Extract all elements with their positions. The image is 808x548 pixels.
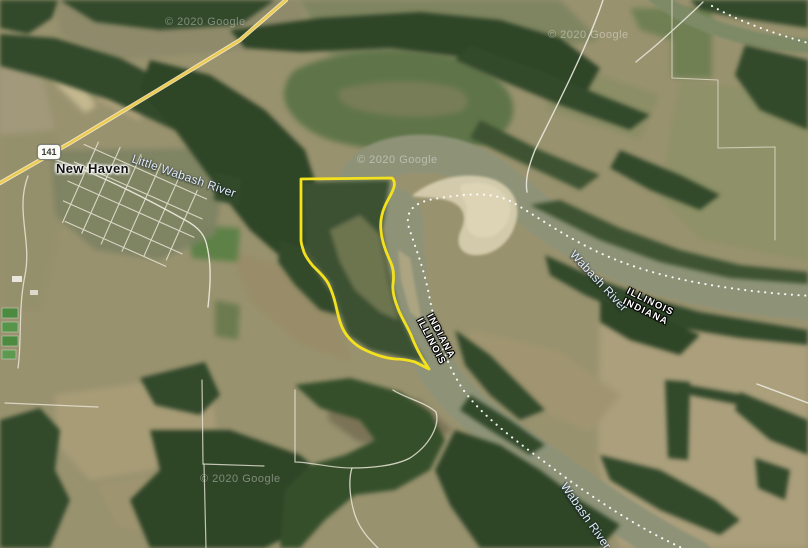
route-141-shield: 141 xyxy=(37,144,61,160)
map-canvas[interactable]: New Haven 141 Little Wabash River Wabash… xyxy=(0,0,808,548)
route-shield-number: 141 xyxy=(41,147,56,157)
satellite-imagery xyxy=(0,0,808,548)
